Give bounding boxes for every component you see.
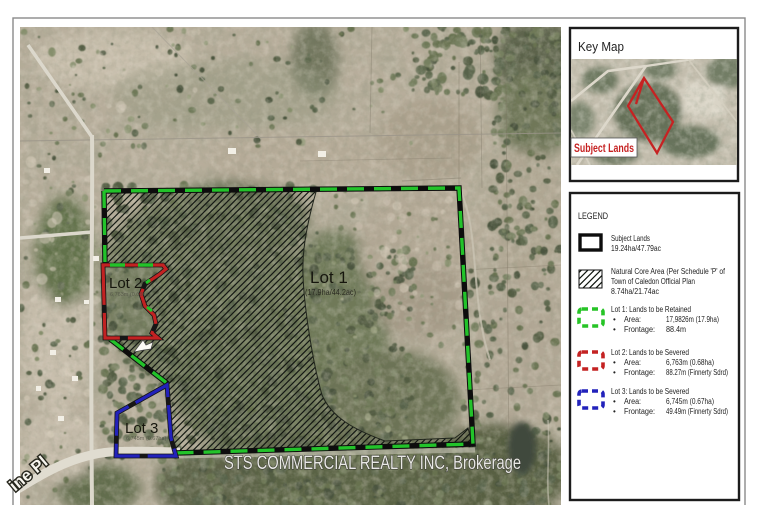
svg-text:Lot 3: Lot 3 (125, 420, 158, 437)
svg-text:STS COMMERCIAL REALTY INC, Bro: STS COMMERCIAL REALTY INC, Brokerage (224, 453, 521, 474)
svg-text:•: • (613, 407, 616, 416)
svg-text:(17.9ha/44.2ac): (17.9ha/44.2ac) (305, 287, 356, 297)
svg-text:49.49m (Finnerty Sdrd): 49.49m (Finnerty Sdrd) (666, 407, 728, 416)
svg-text:19.24ha/47.79ac: 19.24ha/47.79ac (611, 244, 661, 253)
svg-text:8.74ha/21.74ac: 8.74ha/21.74ac (611, 287, 659, 296)
svg-text:Lot 2: Lot 2 (109, 275, 142, 292)
svg-text:LEGEND: LEGEND (578, 211, 608, 221)
svg-text:Lot 1: Lands to be Retained: Lot 1: Lands to be Retained (611, 305, 691, 314)
svg-text:Lot 3: Lands to be Severed: Lot 3: Lands to be Severed (611, 387, 689, 396)
svg-text:Natural Core Area (Per Schedul: Natural Core Area (Per Schedule 'P' of (611, 267, 726, 276)
svg-text:6,745m (0.67ha): 6,745m (0.67ha) (666, 397, 714, 406)
svg-text:Town of Caledon Official Plan: Town of Caledon Official Plan (611, 277, 695, 286)
svg-text:Subject Lands: Subject Lands (611, 234, 650, 243)
svg-text:Frontage:: Frontage: (624, 325, 655, 334)
svg-text:Area:: Area: (624, 358, 641, 367)
svg-text:•: • (613, 325, 616, 334)
svg-text:6,763m (0.68ha): 6,763m (0.68ha) (666, 358, 714, 367)
svg-text:6,763m (0.68ha): 6,763m (0.68ha) (110, 292, 151, 298)
svg-text:Area:: Area: (624, 315, 641, 324)
svg-text:Frontage:: Frontage: (624, 407, 655, 416)
svg-text:88.4m: 88.4m (666, 325, 686, 334)
svg-text:Subject Lands: Subject Lands (574, 143, 634, 155)
svg-text:17,9826m (17.9ha): 17,9826m (17.9ha) (666, 315, 719, 324)
svg-text:Key Map: Key Map (578, 40, 624, 54)
svg-text:•: • (613, 358, 616, 367)
svg-text:Frontage:: Frontage: (624, 368, 655, 377)
svg-text:Lot 2: Lands to be Severed: Lot 2: Lands to be Severed (611, 348, 689, 357)
svg-text:88.27m (Finnerty Sdrd): 88.27m (Finnerty Sdrd) (666, 368, 728, 377)
svg-text:•: • (613, 397, 616, 406)
svg-text:6,745m (0.67ha): 6,745m (0.67ha) (126, 436, 167, 442)
svg-text:•: • (613, 315, 616, 324)
svg-text:Area:: Area: (624, 397, 641, 406)
svg-text:•: • (613, 368, 616, 377)
svg-text:Lot 1: Lot 1 (310, 268, 348, 287)
